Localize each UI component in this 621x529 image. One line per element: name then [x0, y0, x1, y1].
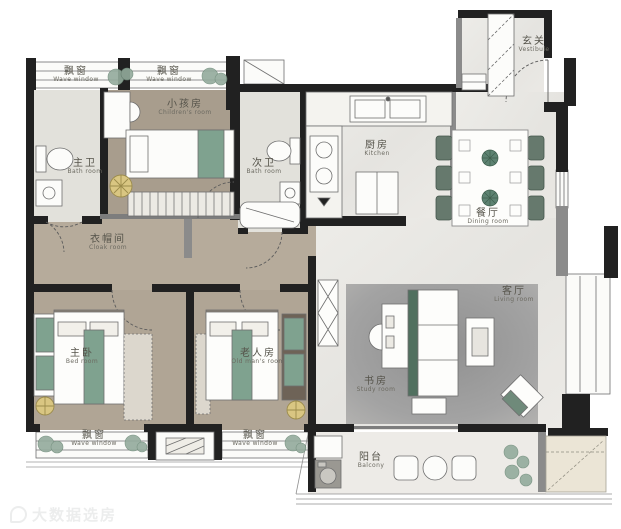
watermark-text: 大数据选房	[32, 504, 117, 525]
entry-closet	[488, 14, 514, 96]
children-blanket	[198, 130, 224, 178]
watermark-logo-icon	[10, 506, 27, 523]
toilet-tank	[36, 146, 46, 172]
dining-chair	[436, 166, 452, 190]
children-pillow	[130, 136, 148, 172]
dining-furniture	[436, 130, 544, 226]
dining-chair	[528, 196, 544, 220]
dining-side-window	[556, 170, 568, 208]
floor-plan: 玄关 Vestibule 飘窗 Wave window 飘窗 Wave wind…	[0, 0, 621, 529]
toilet-bowl	[47, 148, 73, 170]
sofa-back	[408, 290, 418, 396]
dining-chair	[436, 136, 452, 160]
dining-chair	[528, 136, 544, 160]
compass-icon-2	[36, 397, 54, 415]
bookshelf	[318, 280, 338, 346]
dining-chair	[436, 196, 452, 220]
toilet-bowl-2	[267, 141, 291, 161]
compass-icon-3	[287, 401, 305, 419]
master-rug	[124, 334, 152, 420]
ac-niche	[156, 432, 214, 460]
master-blanket	[84, 330, 104, 404]
old-mans-room-furniture	[196, 310, 306, 414]
living-bay-window	[566, 274, 610, 394]
watermark: 大数据选房	[10, 504, 117, 525]
ac-platform	[546, 436, 606, 492]
old-blanket	[232, 330, 252, 400]
balcony-table	[423, 456, 447, 480]
balcony-cabinet	[314, 436, 342, 458]
balcony-chair	[452, 456, 476, 480]
toilet-tank-2	[290, 138, 300, 164]
floor-plan-drawing	[0, 0, 621, 529]
dining-chair	[528, 166, 544, 190]
compass-icon-1	[110, 175, 132, 197]
children-wardrobe	[128, 192, 234, 216]
ottoman	[412, 398, 446, 414]
balcony-chair	[394, 456, 418, 480]
sofa	[418, 290, 458, 396]
